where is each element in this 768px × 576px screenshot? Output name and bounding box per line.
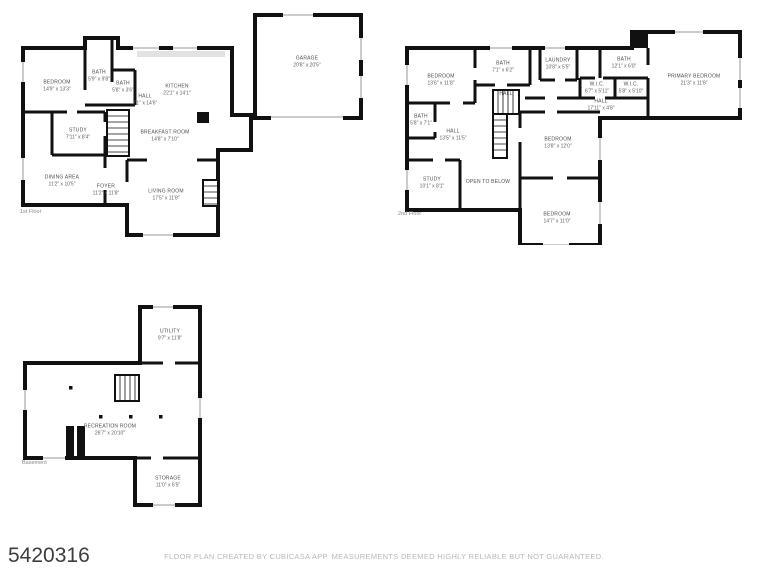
disclaimer-text: FLOOR PLAN CREATED BY CUBICASA APP. MEAS… <box>0 552 768 561</box>
room-dims: 22'1" x 14'1" <box>163 90 190 97</box>
room-label: BATH12'1" x 6'0" <box>612 57 637 70</box>
room-name: UTILITY <box>158 329 182 336</box>
basement-plan: UTILITY9'7" x 11'8" RECREATION ROOM26'7"… <box>15 300 245 510</box>
room-label: BEDROOM13'6" x 11'8" <box>427 74 454 87</box>
room-label: DINING AREA11'2" x 10'5" <box>45 175 79 188</box>
room-label: PRIMARY BEDROOM21'3" x 11'8" <box>668 74 721 87</box>
room-dims: 21'3" x 11'8" <box>668 80 721 87</box>
room-label: BATH5'8" x 7'1" <box>410 114 432 127</box>
room-label: LAUNDRY10'8" x 5'5" <box>545 58 570 71</box>
room-label: STUDY10'1" x 8'1" <box>420 177 445 190</box>
room-name: DINING AREA <box>45 175 79 182</box>
room-label: STUDY7'11" x 8'4" <box>66 128 90 141</box>
second-floor-plan: BEDROOM13'6" x 11'8" BATH7'1" x 6'2" LAU… <box>395 10 750 245</box>
room-name: LAUNDRY <box>545 58 570 65</box>
room-name: STUDY <box>66 128 90 135</box>
room-dims: 5'8" x 7'1" <box>410 120 432 127</box>
second-floor-walls-drawing <box>395 10 750 245</box>
room-label: HALL7'1" x 14'6" <box>133 94 158 107</box>
room-dims: 13'5" x 11'5" <box>439 135 466 142</box>
room-dims: 7'1" x 14'6" <box>133 100 158 107</box>
floor-plan-page: BEDROOM14'9" x 13'3" BATH5'9" x 9'8" BAT… <box>0 0 768 576</box>
room-label: UTILITY9'7" x 11'8" <box>158 329 182 342</box>
rear-steps-icon <box>203 180 218 206</box>
room-dims: 14'7" x 11'0" <box>543 218 570 225</box>
room-dims: 7'1" x 6'2" <box>492 67 514 74</box>
chimney-icon <box>632 32 648 48</box>
room-name: STORAGE <box>155 476 181 483</box>
room-label: BATH7'1" x 6'2" <box>492 61 514 74</box>
staircase-icon <box>115 375 139 401</box>
room-dims: 12'1" x 6'0" <box>612 63 637 70</box>
room-name: STUDY <box>420 177 445 184</box>
first-floor-plan: BEDROOM14'9" x 13'3" BATH5'9" x 9'8" BAT… <box>15 10 370 245</box>
room-name: OPEN TO BELOW <box>466 179 510 186</box>
room-dims: 11'0" x 6'5" <box>155 482 181 489</box>
room-dims: 14'9" x 13'3" <box>43 86 70 93</box>
room-name: BREAKFAST ROOM <box>140 130 189 137</box>
room-label: W.I.C.5'8" x 5'10" <box>619 82 644 95</box>
room-name: KITCHEN <box>163 84 190 91</box>
room-dims: 6'7" x 5'11" <box>585 88 609 95</box>
room-name: BEDROOM <box>543 212 570 219</box>
room-dims: 20'8" x 20'5" <box>293 62 320 69</box>
room-dims: 9'7" x 11'8" <box>158 335 182 342</box>
room-dims: 14'8" x 7'10" <box>140 136 189 143</box>
floor-name-label: Basement <box>22 460 47 466</box>
staircase-icon <box>107 110 129 156</box>
room-name: LIVING ROOM <box>148 189 184 196</box>
floor-name-label: 2nd Floor <box>398 211 421 217</box>
room-label: HALL13'5" x 11'5" <box>439 129 466 142</box>
room-dims: 13'8" x 12'0" <box>544 143 571 150</box>
room-dims: 5'8" x 5'10" <box>619 88 644 95</box>
room-label: RECREATION ROOM26'7" x 20'10" <box>84 424 136 437</box>
room-dims: 13'6" x 11'8" <box>427 80 454 87</box>
room-name: BEDROOM <box>427 74 454 81</box>
room-dims: 26'7" x 20'10" <box>84 430 136 437</box>
room-label: W.I.C.6'7" x 5'11" <box>585 82 609 95</box>
room-label: HALL17'11" x 4'8" <box>587 99 614 112</box>
room-dims: 11'2" x 10'5" <box>45 181 79 188</box>
room-label: FOYER11'2" x 11'8" <box>93 184 120 197</box>
basement-walls-drawing <box>15 300 245 510</box>
room-dims: 10'8" x 5'5" <box>545 64 570 71</box>
room-label: BEDROOM13'8" x 12'0" <box>544 137 571 150</box>
room-dims: 17'5" x 11'8" <box>148 195 184 202</box>
room-dims: 5'8" x 3'6" <box>112 87 134 94</box>
room-name: PRIMARY BEDROOM <box>668 74 721 81</box>
room-label: BEDROOM14'9" x 13'3" <box>43 80 70 93</box>
room-label: BEDROOM14'7" x 11'0" <box>543 212 570 225</box>
room-label: GARAGE20'8" x 20'5" <box>293 56 320 69</box>
room-label: BATH5'8" x 3'6" <box>112 81 134 94</box>
room-dims: 10'1" x 8'1" <box>420 183 445 190</box>
room-name: BEDROOM <box>43 80 70 87</box>
room-dims: 5'9" x 9'8" <box>88 76 110 83</box>
room-dims: 11'2" x 11'8" <box>93 190 120 197</box>
room-name: GARAGE <box>293 56 320 63</box>
room-label: BREAKFAST ROOM14'8" x 7'10" <box>140 130 189 143</box>
room-label: LIVING ROOM17'5" x 11'8" <box>148 189 184 202</box>
room-name: BEDROOM <box>544 137 571 144</box>
room-name: RECREATION ROOM <box>84 424 136 431</box>
room-label: HALL <box>499 91 512 98</box>
room-dims: 7'11" x 8'4" <box>66 134 90 141</box>
room-label: BATH5'9" x 9'8" <box>88 70 110 83</box>
room-label: OPEN TO BELOW <box>466 179 510 186</box>
room-name: HALL <box>499 91 512 98</box>
room-dims: 17'11" x 4'8" <box>587 105 614 112</box>
room-label: KITCHEN22'1" x 14'1" <box>163 84 190 97</box>
floor-name-label: 1st Floor <box>20 209 41 215</box>
room-label: STORAGE11'0" x 6'5" <box>155 476 181 489</box>
chimney-icon <box>197 112 209 123</box>
